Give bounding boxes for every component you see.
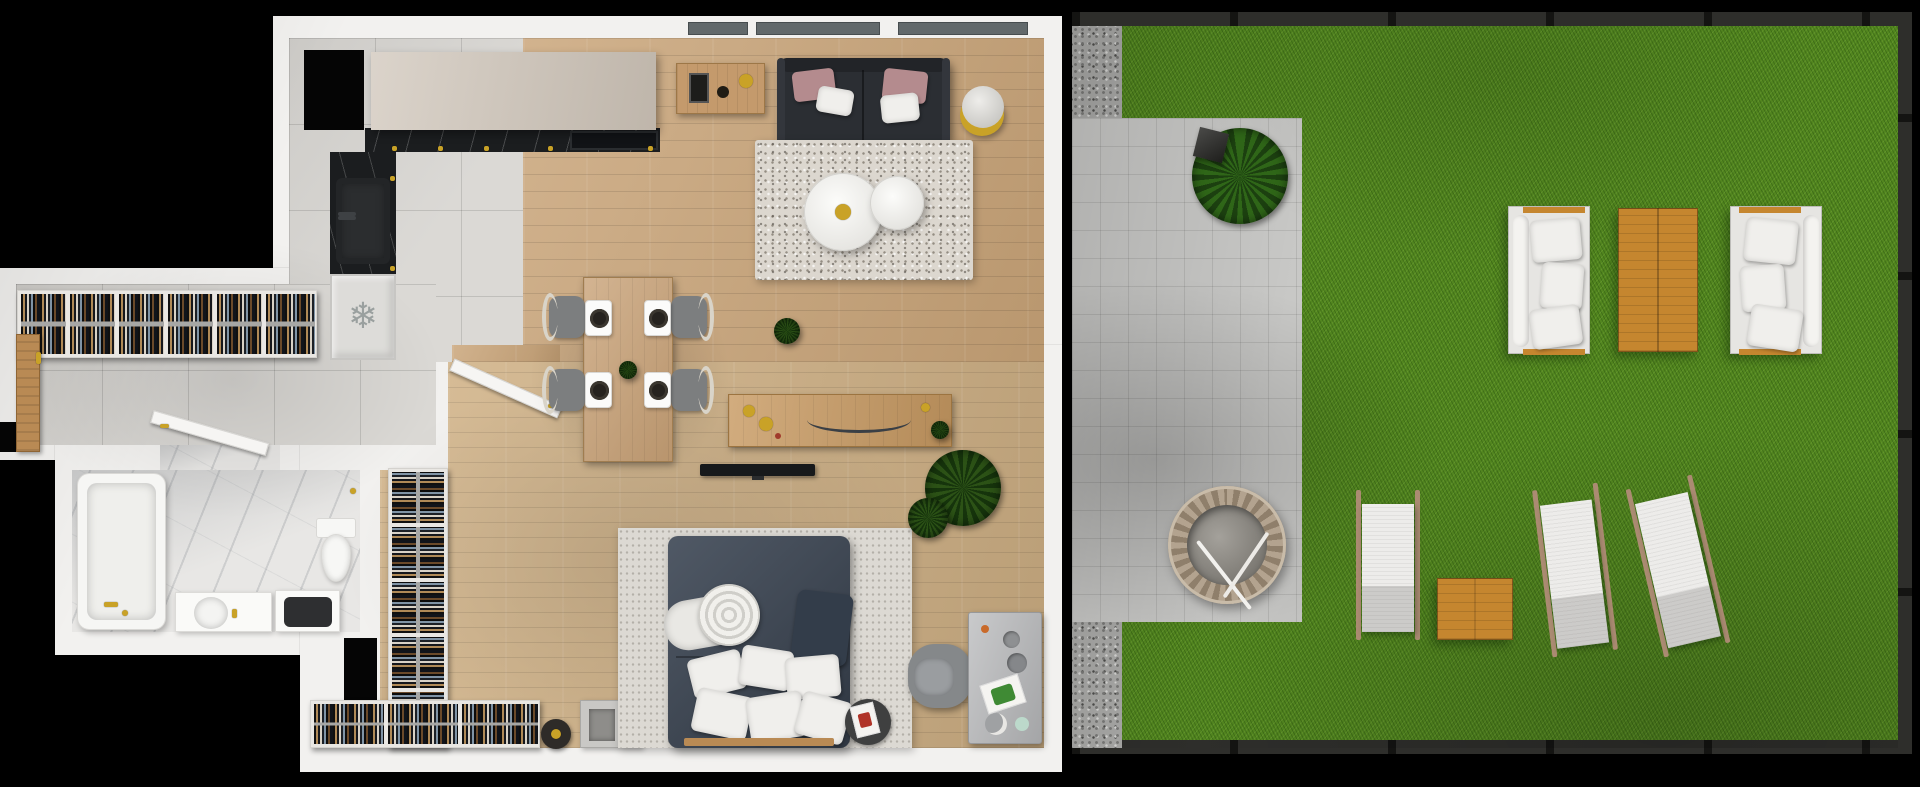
cabinet-tray: [284, 597, 332, 627]
dining-chair: [671, 369, 707, 411]
bathroom-door-handle: [160, 424, 169, 428]
wardrobe-section: [314, 704, 384, 744]
plate: [649, 309, 668, 328]
bathroom-vanity: [175, 592, 272, 632]
sofa-wood-cap: [1523, 349, 1585, 355]
bedroom-desk: [968, 612, 1042, 744]
window-slat: [688, 22, 748, 35]
decor-bowl: [743, 405, 755, 417]
garden-fence-right: [1898, 12, 1912, 754]
bathtub-faucet: [122, 610, 128, 616]
wardrobe-section: [462, 704, 538, 744]
console-side-table: [676, 63, 765, 114]
wardrobe-section: [388, 704, 458, 744]
desk-magazine: [979, 674, 1026, 715]
picture-frame: [689, 73, 709, 103]
decor-star: [921, 403, 930, 412]
outdoor-pillow: [1528, 304, 1583, 351]
sofa-wood-cap: [1739, 207, 1801, 213]
bathtub-basin: [87, 483, 156, 620]
place-setting: [585, 300, 612, 336]
sofa-armrest: [942, 58, 950, 145]
garden-fence-bottom: [1072, 740, 1912, 754]
bedroom-stool: [541, 719, 571, 749]
desk-cup: [985, 713, 1007, 735]
gravel-strip-top: [1072, 26, 1122, 120]
living-sofa: [777, 58, 950, 145]
sideboard-plant: [931, 421, 949, 439]
stool-detail: [551, 729, 561, 739]
dining-chair: [549, 296, 585, 338]
garden-fence-top: [1072, 12, 1912, 26]
hallway-wardrobe: [17, 290, 317, 358]
lounger-rail: [1415, 490, 1420, 640]
bedroom-wardrobe-racks: [310, 700, 540, 748]
dining-chair: [549, 369, 585, 411]
kitchen-duct-shaft: [304, 50, 364, 130]
wardrobe-section: [168, 294, 213, 354]
gravel-strip-bottom: [1072, 620, 1122, 748]
sofa-armrest: [777, 58, 785, 145]
wardrobe-section: [217, 294, 262, 354]
towel-hook: [350, 488, 356, 494]
cooktop-hob: [570, 131, 658, 150]
bedside-round-mat: [845, 699, 891, 745]
plate: [590, 381, 609, 400]
bedroom-palm-offshoot: [908, 498, 948, 538]
outdoor-pillow: [1746, 303, 1804, 353]
sofa-seat-divider: [862, 70, 864, 140]
outdoor-pillow: [1529, 217, 1582, 263]
pouf: [962, 86, 1004, 128]
outdoor-side-table: [1437, 578, 1513, 640]
bathroom-cabinet: [275, 590, 340, 632]
snowflake-icon: ❄: [348, 299, 378, 335]
sofa-back-roll: [1803, 215, 1819, 347]
armchair-cushion: [914, 658, 954, 696]
kitchen-sink: [336, 178, 390, 264]
outdoor-pillow: [1743, 216, 1799, 265]
counter-handle: [390, 176, 395, 181]
vanity-sink: [194, 597, 228, 629]
place-setting: [644, 372, 671, 408]
outdoor-pillow: [1539, 262, 1584, 311]
wardrobe-section: [70, 294, 115, 354]
plate: [649, 381, 668, 400]
desk-bowl: [1007, 653, 1027, 673]
decor-sculpture-arc: [807, 407, 911, 433]
lounger-rail: [1356, 490, 1361, 640]
plate: [590, 309, 609, 328]
wardrobe-section: [119, 294, 164, 354]
entrance-door-handle: [36, 352, 41, 364]
wardrobe-section: [392, 527, 444, 578]
coffee-table-bowl: [835, 204, 851, 220]
decor-bowl: [759, 417, 773, 431]
outdoor-sofa-left: [1508, 206, 1590, 354]
bathtub-faucet: [104, 602, 118, 607]
coffee-table-small: [870, 176, 924, 230]
dresser-inset: [589, 709, 615, 741]
sofa-back-roll: [1513, 215, 1529, 347]
bathtub: [77, 473, 166, 630]
cabinet-handle: [648, 146, 653, 151]
table-centerpiece-plant: [619, 361, 637, 379]
cabinet-handle: [548, 146, 553, 151]
window-slat: [756, 22, 880, 35]
headboard-strip: [684, 738, 834, 746]
vanity-faucet: [232, 609, 237, 618]
bedroom-armchair: [908, 644, 972, 708]
cabinet-handle: [484, 146, 489, 151]
lounger-fold: [1362, 586, 1414, 632]
media-sideboard: [728, 394, 952, 447]
lounger-fold: [1657, 585, 1721, 648]
outdoor-sofa-right: [1730, 206, 1822, 354]
bed-pillow: [690, 687, 754, 742]
sun-lounger: [1356, 490, 1420, 640]
desk-bowl: [1003, 631, 1020, 648]
decor-twig: [717, 86, 729, 98]
magazine-art: [857, 712, 872, 728]
wardrobe-section: [266, 294, 315, 354]
decor-red-item: [775, 433, 781, 439]
window-slat: [898, 22, 1028, 35]
hanging-egg-chair: [1168, 486, 1286, 604]
wardrobe-section: [392, 582, 444, 633]
sofa-wood-cap: [1523, 207, 1585, 213]
cabinet-handle: [392, 146, 397, 151]
place-setting: [585, 372, 612, 408]
wardrobe-section: [392, 637, 444, 688]
wardrobe-section: [392, 472, 444, 523]
decor-tray: [739, 74, 753, 88]
outdoor-coffee-table: [1618, 208, 1698, 352]
bed: [668, 536, 850, 748]
white-pillow: [815, 85, 855, 117]
desk-magazine-art: [990, 683, 1016, 706]
desk-coaster: [1015, 717, 1029, 731]
counter-handle: [390, 266, 395, 271]
cabinet-handle: [438, 146, 443, 151]
place-setting: [644, 300, 671, 336]
rolled-blanket-swirl: [698, 584, 760, 646]
kitchen-faucet: [338, 212, 356, 216]
lounger-fold: [1551, 593, 1609, 649]
bedroom-doorway-wood-floor: [452, 345, 560, 362]
floor-plan-canvas: ❄: [0, 0, 1920, 787]
dining-chair: [671, 296, 707, 338]
tv-stand-foot: [752, 476, 764, 480]
desk-candle: [981, 625, 989, 633]
kitchen-upper-cabinets: [371, 52, 656, 130]
bathroom-duct-shaft: [344, 638, 377, 702]
magazine: [849, 702, 880, 739]
refrigerator: ❄: [330, 274, 396, 360]
white-pillow: [880, 92, 921, 124]
wall-mounted-tv: [700, 464, 815, 476]
living-small-plant: [774, 318, 800, 344]
entrance-door-gap: [0, 422, 16, 452]
